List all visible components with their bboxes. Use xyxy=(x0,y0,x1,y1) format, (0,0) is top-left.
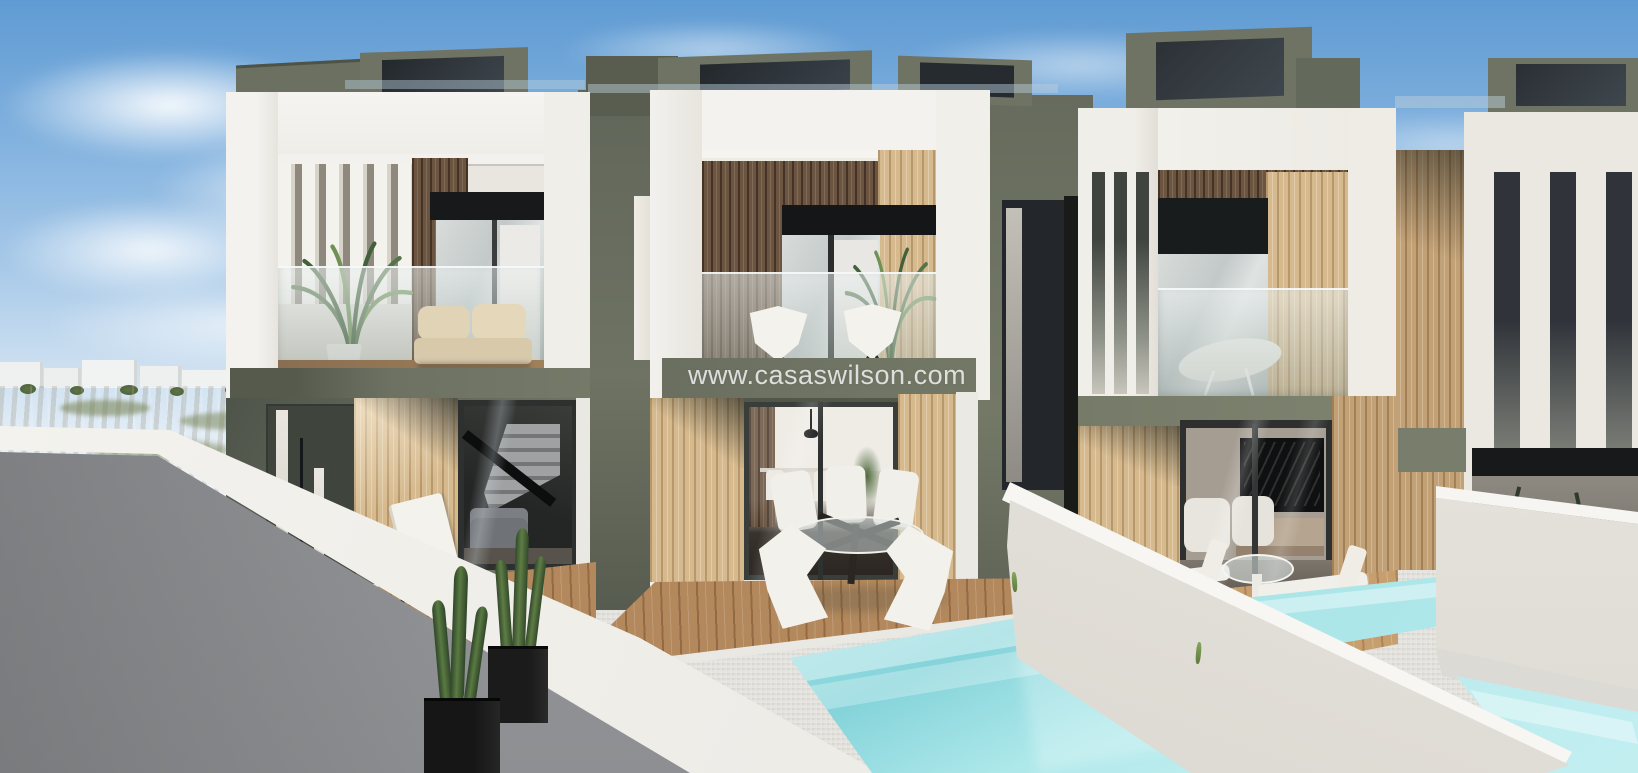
watermark: www.casaswilson.com xyxy=(688,360,966,391)
architectural-render: www.casaswilson.com xyxy=(0,0,1638,773)
cactus-planter xyxy=(424,698,500,773)
cactus-blade xyxy=(495,560,514,657)
cactus-blade xyxy=(463,606,489,707)
